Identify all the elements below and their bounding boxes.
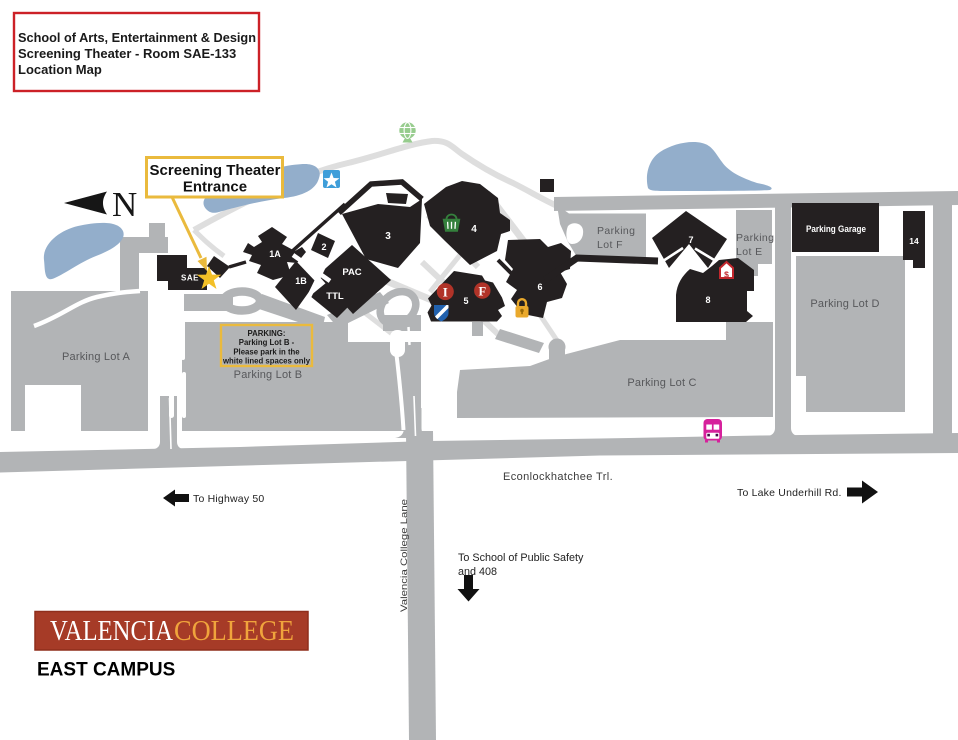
svg-text:F: F [478, 284, 486, 298]
svg-text:5: 5 [463, 296, 468, 306]
svg-text:Lot F: Lot F [597, 239, 623, 251]
svg-text:Screening Theater: Screening Theater [150, 162, 281, 179]
svg-text:I: I [443, 285, 448, 300]
svg-text:Lot E: Lot E [736, 246, 763, 258]
svg-text:PAC: PAC [342, 267, 361, 278]
svg-text:7: 7 [688, 235, 693, 245]
svg-text:Parking: Parking [597, 225, 635, 237]
svg-text:TTL: TTL [326, 291, 344, 302]
svg-text:Screening Theater - Room SAE-1: Screening Theater - Room SAE-133 [18, 46, 236, 61]
svg-text:To School of Public Safety: To School of Public Safety [458, 552, 584, 564]
svg-text:1A: 1A [269, 249, 281, 259]
svg-text:VALENCIA: VALENCIA [50, 616, 174, 647]
svg-text:and 408: and 408 [458, 566, 497, 578]
svg-text:Parking Lot B: Parking Lot B [234, 369, 303, 381]
svg-text:white lined spaces only: white lined spaces only [222, 357, 311, 366]
svg-text:Parking Lot B -: Parking Lot B - [239, 338, 295, 347]
svg-text:To Highway 50: To Highway 50 [193, 493, 264, 505]
svg-text:4: 4 [471, 224, 477, 235]
svg-text:1B: 1B [295, 276, 307, 286]
svg-text:Valencia College Lane: Valencia College Lane [399, 499, 409, 612]
svg-text:8: 8 [705, 295, 710, 305]
svg-text:Econlockhatchee Trl.: Econlockhatchee Trl. [503, 471, 613, 483]
svg-text:14: 14 [909, 236, 919, 246]
svg-text:SAE: SAE [181, 274, 199, 283]
svg-text:To Lake Underhill Rd.: To Lake Underhill Rd. [737, 487, 842, 499]
svg-text:Parking Lot A: Parking Lot A [62, 351, 130, 363]
svg-text:Parking Lot C: Parking Lot C [627, 377, 696, 389]
svg-text:Parking Lot D: Parking Lot D [810, 298, 879, 310]
svg-text:Parking: Parking [736, 232, 774, 244]
svg-text:N: N [112, 185, 137, 224]
svg-text:Location Map: Location Map [18, 62, 102, 77]
svg-text:$: $ [724, 270, 729, 280]
svg-text:EAST CAMPUS: EAST CAMPUS [37, 660, 175, 681]
svg-text:PARKING:: PARKING: [248, 329, 286, 338]
svg-text:6: 6 [537, 282, 542, 292]
svg-text:Parking Garage: Parking Garage [806, 224, 866, 235]
svg-text:Please park in the: Please park in the [233, 348, 300, 357]
svg-text:COLLEGE: COLLEGE [174, 616, 294, 647]
svg-text:Entrance: Entrance [183, 179, 247, 196]
svg-text:School of Arts, Entertainment: School of Arts, Entertainment & Design [18, 30, 256, 45]
svg-text:2: 2 [321, 242, 326, 252]
svg-text:3: 3 [385, 231, 391, 242]
